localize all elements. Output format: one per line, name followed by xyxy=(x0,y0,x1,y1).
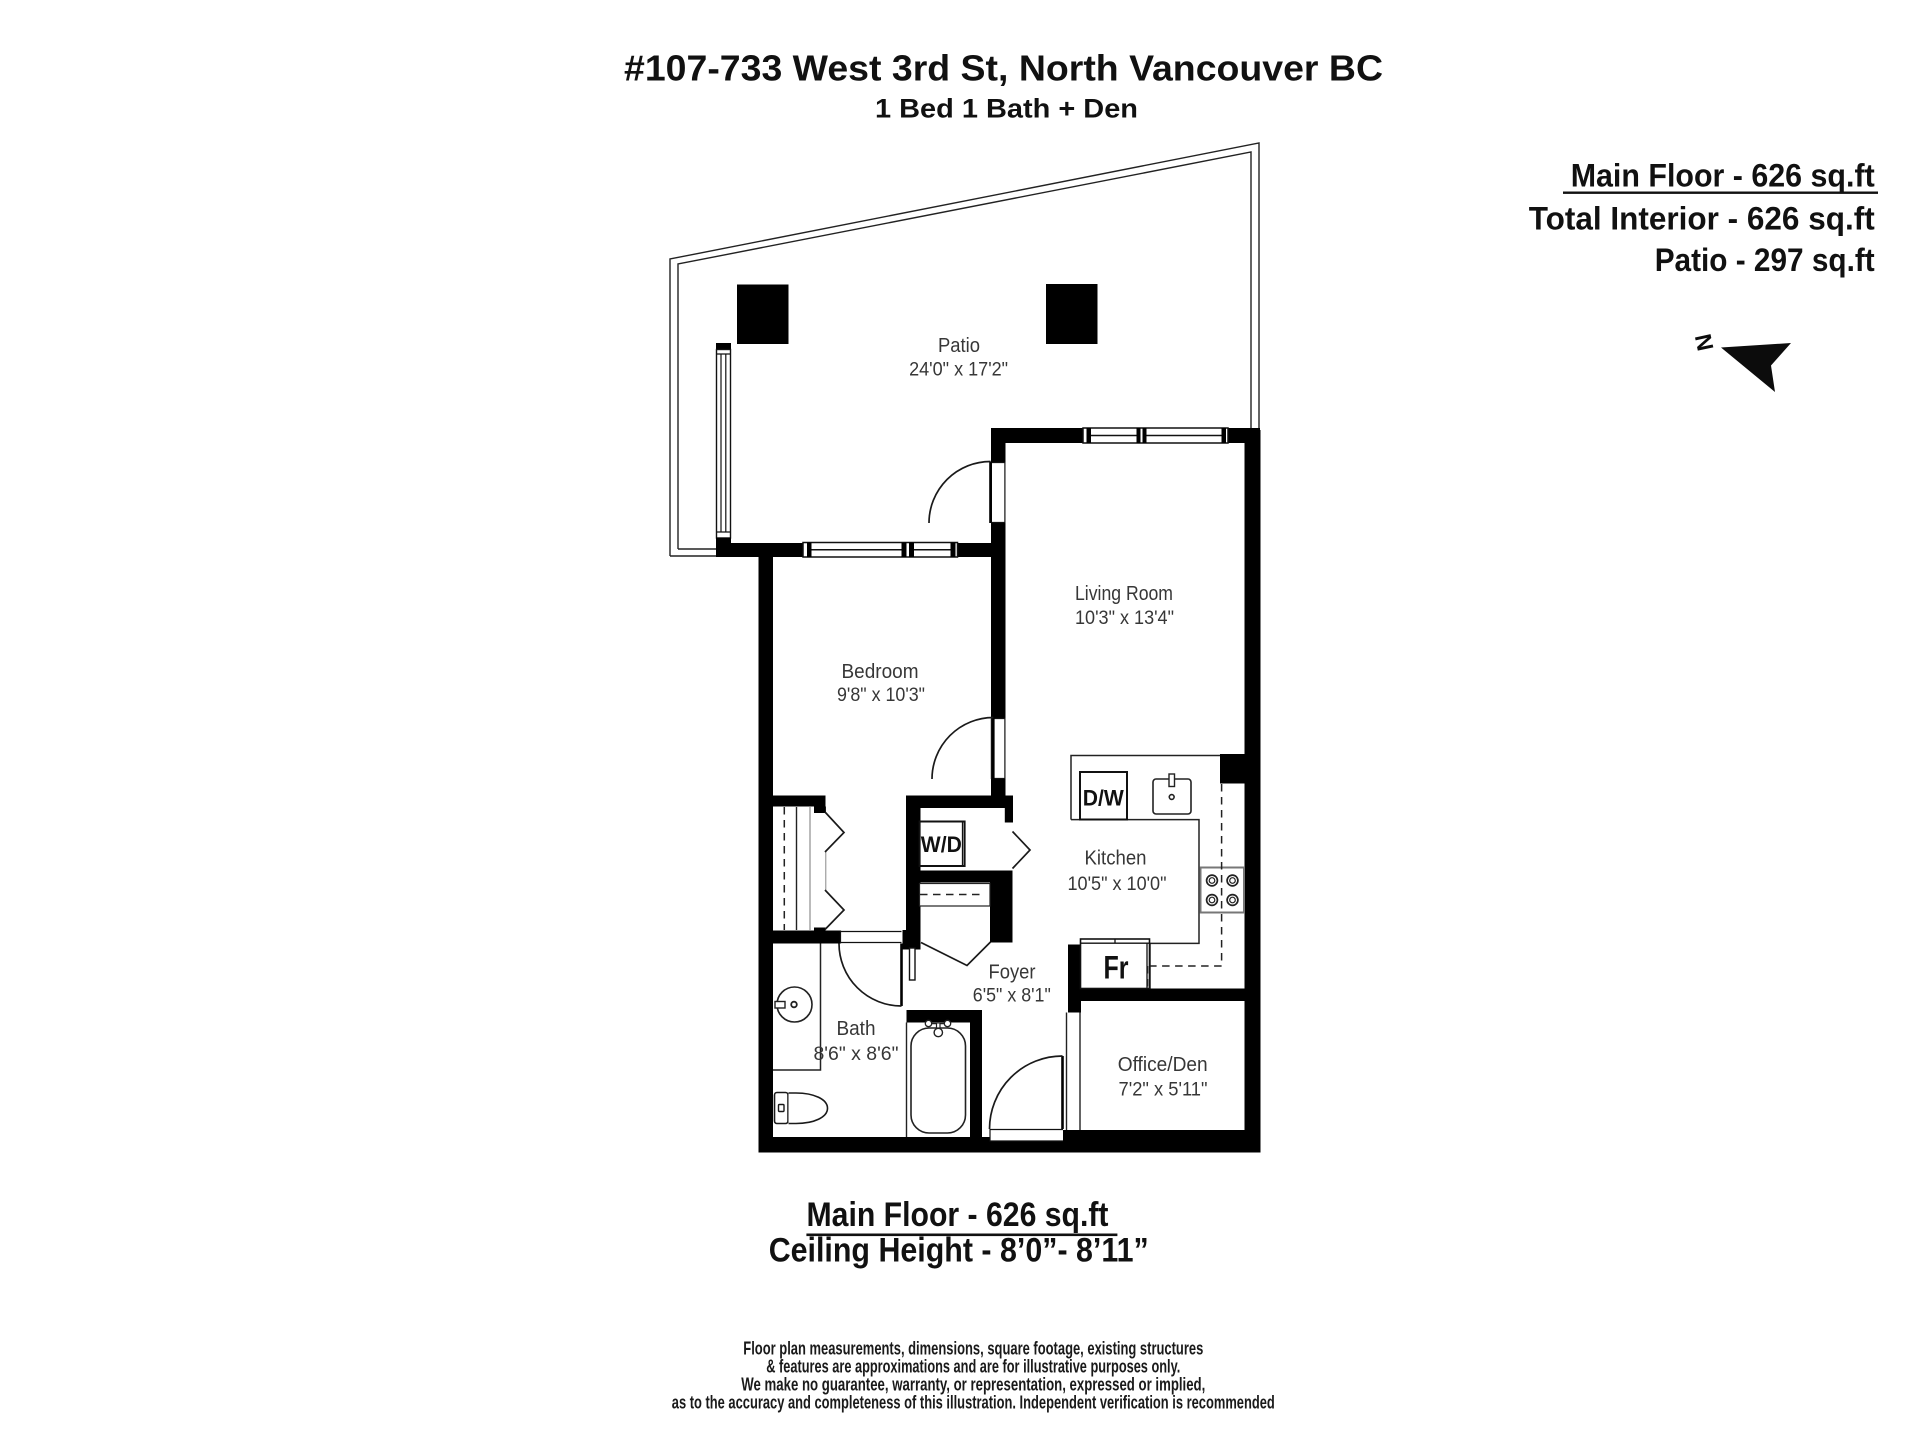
svg-text:Foyer: Foyer xyxy=(989,962,1036,984)
svg-text:Kitchen: Kitchen xyxy=(1085,848,1147,870)
svg-text:W/D: W/D xyxy=(921,832,962,857)
svg-text:Ceiling Height - 8’0”- 8’11”: Ceiling Height - 8’0”- 8’11” xyxy=(769,1231,1149,1269)
svg-text:We make no guarantee, warranty: We make no guarantee, warranty, or repre… xyxy=(741,1374,1205,1394)
svg-text:Patio: Patio xyxy=(938,335,980,357)
svg-text:& features are approximations: & features are approximations and are fo… xyxy=(766,1356,1180,1376)
svg-text:9'8" x 10'3": 9'8" x 10'3" xyxy=(837,685,925,706)
svg-text:as to the accuracy and complet: as to the accuracy and completeness of t… xyxy=(672,1392,1275,1412)
svg-text:6'5" x 8'1": 6'5" x 8'1" xyxy=(973,986,1051,1007)
svg-text:Fr: Fr xyxy=(1104,950,1129,986)
svg-text:10'3" x 13'4": 10'3" x 13'4" xyxy=(1075,608,1174,629)
svg-text:#107-733 West 3rd St, North Va: #107-733 West 3rd St, North Vancouver BC xyxy=(624,47,1383,88)
svg-text:Bedroom: Bedroom xyxy=(842,661,919,683)
svg-text:Patio - 297 sq.ft: Patio - 297 sq.ft xyxy=(1655,242,1875,278)
svg-text:10'5" x 10'0": 10'5" x 10'0" xyxy=(1068,874,1167,895)
svg-text:Floor plan measurements, dimen: Floor plan measurements, dimensions, squ… xyxy=(743,1338,1203,1358)
svg-text:24'0" x 17'2": 24'0" x 17'2" xyxy=(909,360,1008,381)
svg-text:Total Interior - 626 sq.ft: Total Interior - 626 sq.ft xyxy=(1529,200,1875,236)
svg-text:Office/Den: Office/Den xyxy=(1118,1054,1208,1076)
svg-text:8'6" x 8'6": 8'6" x 8'6" xyxy=(814,1044,899,1065)
svg-text:Main Floor - 626 sq.ft: Main Floor - 626 sq.ft xyxy=(807,1196,1109,1234)
svg-text:Living Room: Living Room xyxy=(1075,583,1173,605)
svg-text:Bath: Bath xyxy=(837,1018,876,1040)
svg-text:Main Floor - 626 sq.ft: Main Floor - 626 sq.ft xyxy=(1571,158,1875,194)
svg-text:7'2" x 5'11": 7'2" x 5'11" xyxy=(1119,1080,1208,1101)
svg-text:1 Bed 1 Bath + Den: 1 Bed 1 Bath + Den xyxy=(875,94,1138,124)
svg-text:D/W: D/W xyxy=(1083,786,1125,811)
